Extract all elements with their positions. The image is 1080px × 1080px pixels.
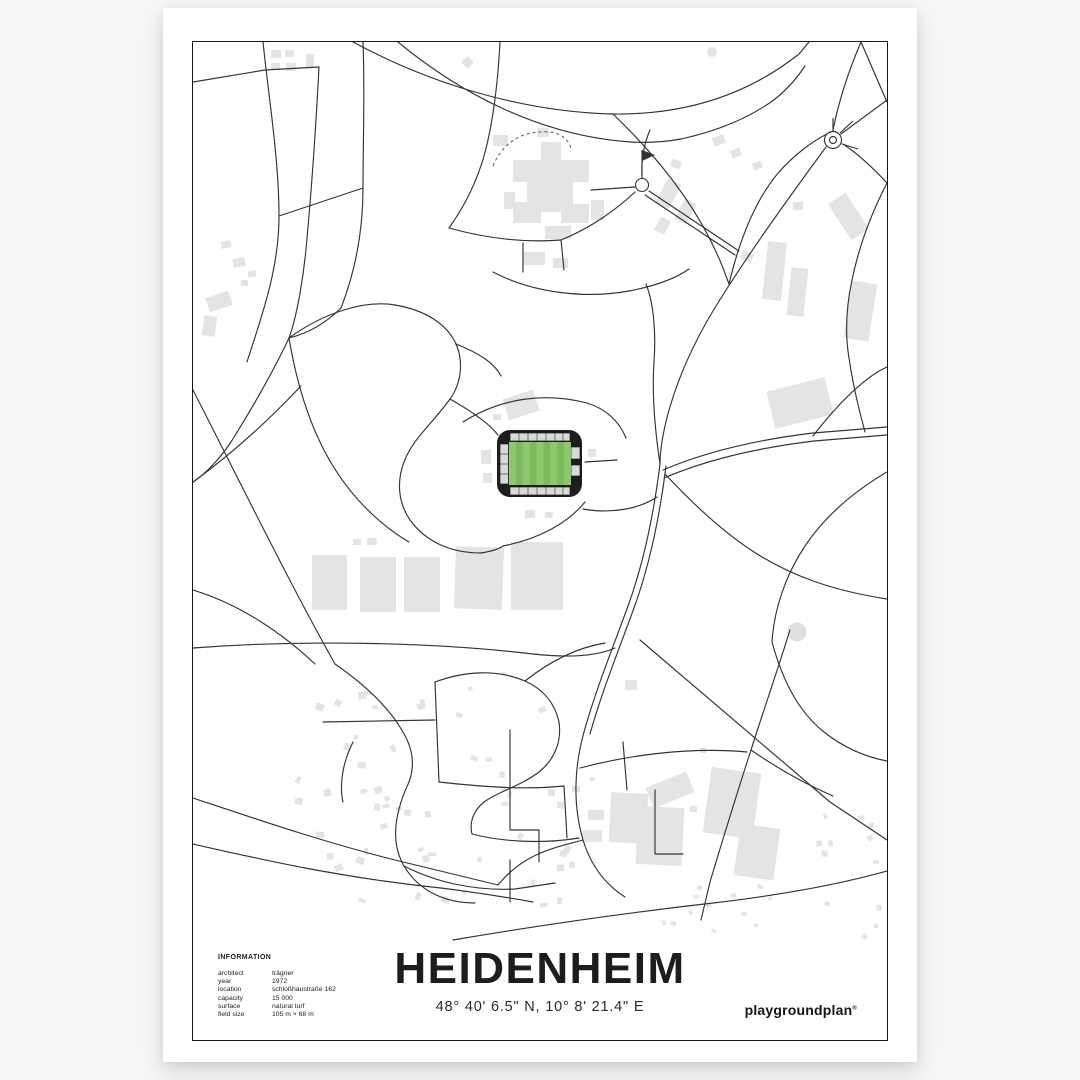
poster: INFORMATION architect trägner year 1972 … bbox=[163, 8, 917, 1062]
houses-layer bbox=[294, 671, 882, 940]
gray-dot bbox=[707, 47, 717, 57]
page-title: HEIDENHEIM bbox=[193, 945, 887, 993]
roundabout-hospital-icon bbox=[636, 150, 656, 192]
city-map bbox=[193, 42, 887, 947]
hospital-building bbox=[513, 142, 589, 223]
registered-mark: ® bbox=[852, 1005, 857, 1011]
stadium-pitch bbox=[509, 442, 571, 485]
brand-logo: playgroundplan® bbox=[745, 1002, 857, 1018]
page-background: { "poster": { "title": "HEIDENHEIM", "co… bbox=[0, 0, 1080, 1080]
water-tower-circle bbox=[788, 623, 807, 642]
map-frame: INFORMATION architect trägner year 1972 … bbox=[192, 41, 888, 1041]
stadium bbox=[497, 430, 582, 497]
